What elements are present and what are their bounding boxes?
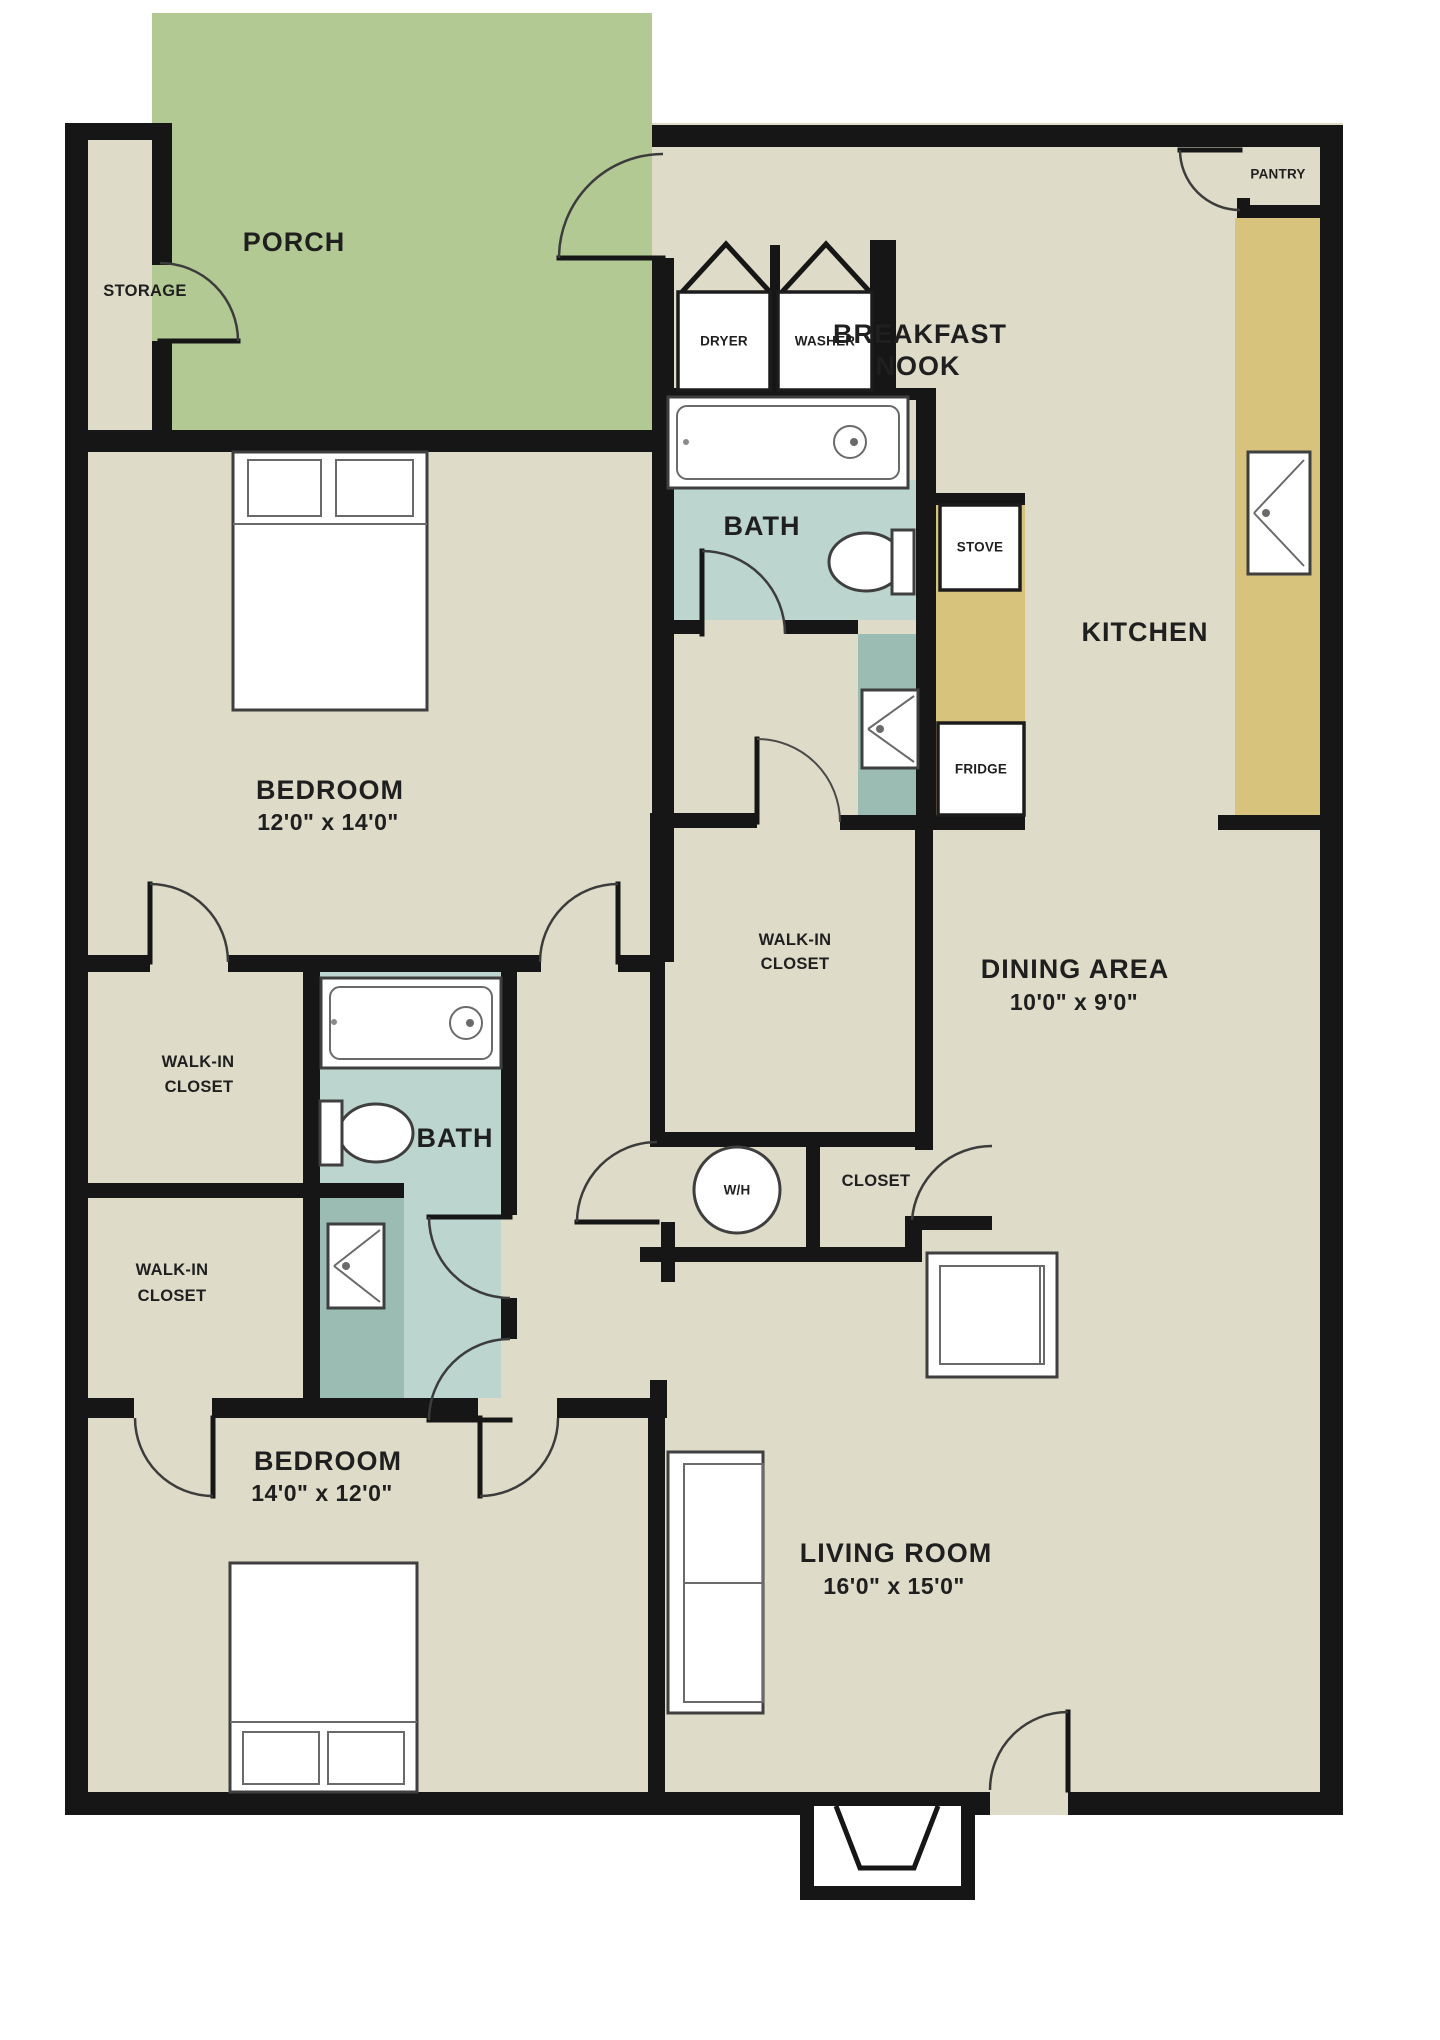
breakfast-nook-label-line1: BREAKFAST bbox=[833, 319, 1007, 349]
wall-bath-bottom-right-upper bbox=[501, 955, 517, 1215]
wall-bedroom-top-bottom-b bbox=[228, 955, 541, 972]
armchair bbox=[927, 1253, 1057, 1377]
closet-center-label-line1: WALK-IN bbox=[759, 931, 832, 949]
wall-kitchen-left-bottom bbox=[840, 815, 1025, 830]
bedroom-top-dims: 12'0" x 14'0" bbox=[257, 809, 399, 835]
floor-plan-page: PORCH STORAGE DRYER WASHER BREAKFAST NOO… bbox=[0, 0, 1440, 2040]
bedroom-bottom-label: BEDROOM bbox=[254, 1446, 402, 1476]
bedroom-top-label: BEDROOM bbox=[256, 775, 404, 805]
bathtub-top bbox=[668, 397, 908, 488]
wall-closet-door-post bbox=[905, 1216, 922, 1253]
wall-storage-right-upper bbox=[152, 123, 172, 265]
wic-lower-label-line1: WALK-IN bbox=[136, 1261, 209, 1279]
wall-wh-closet-divider bbox=[806, 1147, 820, 1247]
floor-plan-drawing: PORCH STORAGE DRYER WASHER BREAKFAST NOO… bbox=[0, 0, 1440, 2040]
wall-wic-divider bbox=[65, 1183, 404, 1198]
bed-bottom bbox=[230, 1563, 417, 1792]
porch-label: PORCH bbox=[243, 227, 346, 257]
wall-kitchen-right-bottom bbox=[1218, 815, 1343, 830]
bath-top-label: BATH bbox=[724, 511, 801, 541]
vanity-sink-bottom bbox=[328, 1224, 384, 1308]
wall-outer-bottom-right bbox=[1068, 1792, 1343, 1815]
wall-closet-center-bottom bbox=[650, 1132, 933, 1147]
wall-bedroom-bottom-top-a bbox=[65, 1398, 134, 1418]
living-room-dims: 16'0" x 15'0" bbox=[823, 1573, 965, 1599]
wall-closet-center-top bbox=[650, 813, 757, 828]
wall-porch-bottom bbox=[65, 430, 674, 452]
storage-label: STORAGE bbox=[103, 282, 186, 300]
closet-center-label-line2: CLOSET bbox=[761, 955, 830, 973]
closet-label: CLOSET bbox=[842, 1172, 911, 1190]
wall-pantry-bottom bbox=[1237, 205, 1343, 218]
wall-hall-right-lower bbox=[650, 1380, 667, 1418]
wall-bedroom-bottom-top-c bbox=[557, 1398, 652, 1418]
bed-top bbox=[233, 452, 427, 710]
dryer-label: DRYER bbox=[700, 334, 748, 349]
kitchen-sink bbox=[1248, 452, 1310, 574]
bathtub-bottom bbox=[321, 978, 501, 1068]
wall-bedroom-top-bottom-a bbox=[65, 955, 150, 972]
wall-dining-left bbox=[915, 828, 933, 1150]
wic-lower-label-line2: CLOSET bbox=[138, 1287, 207, 1305]
wall-hall-right-upper bbox=[650, 828, 665, 1140]
wall-living-left bbox=[648, 1418, 665, 1792]
breakfast-nook-label-line2: NOOK bbox=[876, 351, 961, 381]
wall-wh-closet-bottom bbox=[640, 1247, 922, 1262]
toilet-bottom bbox=[320, 1101, 413, 1165]
wall-stove-top bbox=[936, 493, 1025, 505]
wall-closet-door-stub bbox=[920, 1216, 992, 1230]
dining-area-label: DINING AREA bbox=[981, 954, 1170, 984]
sofa bbox=[668, 1452, 763, 1713]
wall-bath-bottom-right-mid bbox=[501, 1298, 517, 1339]
stove-label: STOVE bbox=[957, 540, 1004, 555]
wall-pantry-stub bbox=[1237, 198, 1250, 218]
living-room-label: LIVING ROOM bbox=[800, 1538, 993, 1568]
wall-bath-top-bottom-b bbox=[785, 620, 858, 634]
porch-floor bbox=[152, 13, 652, 443]
wic-upper-label-line1: WALK-IN bbox=[162, 1053, 235, 1071]
toilet-top bbox=[829, 530, 914, 594]
wall-bedroom-top-bottom-c bbox=[618, 955, 652, 972]
pantry-label: PANTRY bbox=[1250, 167, 1305, 182]
wall-outer-right bbox=[1320, 125, 1343, 1815]
wall-bedroom-bottom-top-b bbox=[212, 1398, 478, 1418]
entry-stoop bbox=[800, 1792, 975, 1900]
bedroom-bottom-dims: 14'0" x 12'0" bbox=[251, 1480, 393, 1506]
vanity-sink-top bbox=[862, 690, 918, 768]
wic-upper-label-line2: CLOSET bbox=[165, 1078, 234, 1096]
water-heater-label: W/H bbox=[724, 1183, 751, 1198]
wall-bath-top-bottom-a bbox=[652, 620, 702, 634]
fridge-label: FRIDGE bbox=[955, 762, 1007, 777]
dining-area-dims: 10'0" x 9'0" bbox=[1010, 989, 1138, 1015]
kitchen-label: KITCHEN bbox=[1082, 617, 1209, 647]
wall-storage-right-lower bbox=[152, 341, 172, 441]
wall-outer-top bbox=[652, 125, 1343, 147]
bath-bottom-label: BATH bbox=[417, 1123, 494, 1153]
